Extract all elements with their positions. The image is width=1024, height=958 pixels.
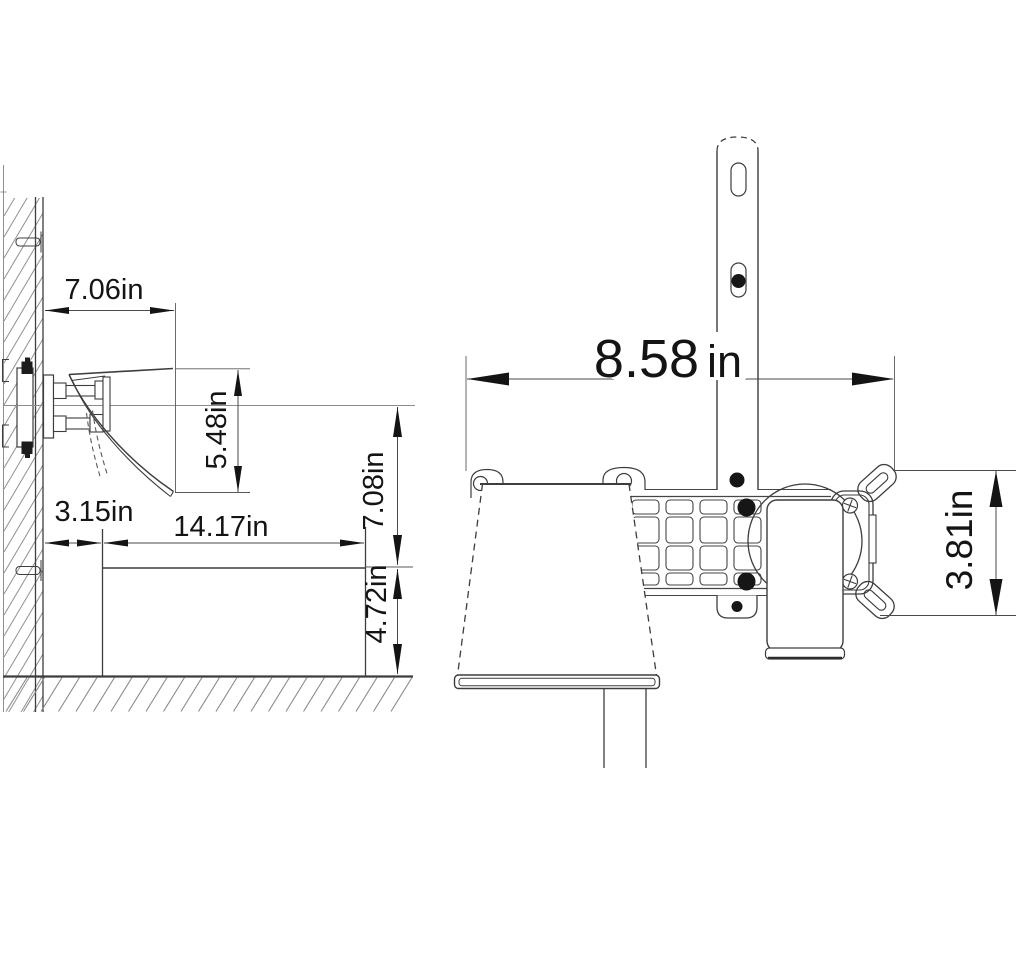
dimension-wall-to-basin: 3.15in bbox=[45, 496, 134, 547]
hatch-stroke bbox=[321, 678, 342, 712]
spout-back-plate bbox=[103, 377, 110, 431]
hatch-stroke bbox=[94, 678, 115, 712]
bar-screw-1 bbox=[730, 473, 745, 488]
dim-label-spout-height: 7.08in bbox=[358, 451, 390, 530]
hatch-stroke bbox=[76, 678, 97, 712]
hatch-stroke bbox=[374, 678, 395, 712]
valve-grid-cell bbox=[666, 500, 693, 514]
dim-label-spout-reach: 7.06in bbox=[64, 274, 143, 306]
hatch-stroke bbox=[4, 549, 43, 615]
bar-screw-3 bbox=[738, 573, 756, 591]
ground-hatch bbox=[6, 678, 412, 712]
dim-label-wall-to-basin: 3.15in bbox=[54, 496, 133, 528]
bar-slot-top bbox=[731, 163, 746, 196]
side-view: 7.06in 5.48in 3.15in 14.17in bbox=[1, 150, 416, 762]
valve-grid-cell bbox=[666, 573, 693, 585]
dimension-spout-height: 7.08in bbox=[358, 407, 402, 565]
hatch-stroke bbox=[391, 678, 412, 712]
bar-screw-2 bbox=[738, 499, 756, 517]
lower-supply-pipe bbox=[66, 418, 90, 429]
hatch-stroke bbox=[6, 678, 27, 712]
hatch-stroke bbox=[4, 654, 43, 720]
hatch-stroke bbox=[4, 570, 43, 636]
valve-grid-cell bbox=[666, 517, 693, 543]
hatch-stroke bbox=[4, 276, 43, 342]
hatch-stroke bbox=[199, 678, 220, 712]
hatch-stroke bbox=[216, 678, 237, 712]
bar-screw-mid bbox=[732, 274, 746, 288]
hatch-stroke bbox=[4, 612, 43, 678]
dim-label-basin-height: 4.72in bbox=[361, 564, 393, 643]
hatch-stroke bbox=[4, 465, 43, 531]
hatch-stroke bbox=[4, 591, 43, 657]
dimension-plate-height: 3.81in bbox=[880, 471, 1016, 616]
hatch-stroke bbox=[129, 678, 150, 712]
hatch-stroke bbox=[4, 255, 43, 321]
hatch-stroke bbox=[339, 678, 360, 712]
in-wall-bracket bbox=[3, 358, 34, 459]
hatch-stroke bbox=[251, 678, 272, 712]
hatch-stroke bbox=[181, 678, 202, 712]
hatch-stroke bbox=[4, 486, 43, 552]
supply-stem bbox=[604, 689, 646, 768]
hatch-stroke bbox=[304, 678, 325, 712]
hatch-stroke bbox=[4, 675, 43, 741]
front-view: 8.58in 3.81in bbox=[455, 137, 1017, 768]
wall-section bbox=[1, 150, 44, 762]
hatch-stroke bbox=[4, 150, 43, 216]
valve-grid-cell bbox=[700, 517, 727, 543]
hatch-stroke bbox=[4, 171, 43, 237]
valve-grid-cell bbox=[632, 500, 659, 514]
hatch-stroke bbox=[41, 678, 62, 712]
dim-label-plate-height: 3.81in bbox=[939, 490, 980, 591]
hatch-stroke bbox=[4, 234, 43, 300]
hatch-stroke bbox=[286, 678, 307, 712]
faucet-installation-diagram: 7.06in 5.48in 3.15in 14.17in bbox=[0, 0, 1024, 958]
faucet-arm bbox=[44, 375, 111, 438]
dim-label-spout-drop: 5.48in bbox=[201, 390, 233, 469]
hatch-stroke bbox=[111, 678, 132, 712]
valve-grid-cell bbox=[666, 546, 693, 570]
hatch-stroke bbox=[4, 507, 43, 573]
technical-drawing-page: 7.06in 5.48in 3.15in 14.17in bbox=[0, 0, 1024, 958]
dim-label-overall-width: 8.58in bbox=[594, 329, 742, 389]
hatch-stroke bbox=[4, 192, 43, 258]
bracket-bolt-top bbox=[22, 362, 33, 375]
valve-grid-cell bbox=[700, 573, 727, 585]
wall-hatch bbox=[4, 150, 43, 762]
hatch-stroke bbox=[164, 678, 185, 712]
bar-screw-4 bbox=[732, 601, 743, 612]
mounting-ear-top-right bbox=[854, 460, 901, 505]
dimension-overall-width: 8.58in bbox=[466, 329, 895, 471]
spout-rim bbox=[455, 675, 660, 689]
valve-grid-cell bbox=[700, 500, 727, 514]
wall-flange bbox=[44, 375, 54, 438]
hatch-stroke bbox=[59, 678, 80, 712]
hatch-stroke bbox=[146, 678, 167, 712]
hatch-stroke bbox=[356, 678, 377, 712]
dimension-basin-width: 14.17in bbox=[104, 511, 364, 547]
spout-front bbox=[455, 484, 660, 689]
bracket-bolt-bottom bbox=[22, 442, 33, 455]
wall-anchor-screw-top bbox=[16, 232, 41, 253]
wall-anchor-screw-bottom bbox=[16, 560, 41, 581]
hatch-stroke bbox=[4, 297, 43, 363]
hatch-stroke bbox=[4, 528, 43, 594]
plate-side-tab bbox=[869, 515, 876, 563]
dim-label-basin-width: 14.17in bbox=[173, 511, 268, 543]
ground bbox=[3, 677, 413, 712]
upper-supply-pipe bbox=[66, 386, 95, 397]
dimension-basin-height: 4.72in bbox=[361, 564, 402, 674]
valve-grid-cell bbox=[700, 546, 727, 570]
dimension-spout-drop: 5.48in bbox=[175, 369, 250, 493]
hatch-stroke bbox=[269, 678, 290, 712]
hatch-stroke bbox=[234, 678, 255, 712]
valve-grid-cell bbox=[734, 546, 761, 570]
handle-housing bbox=[766, 500, 845, 659]
